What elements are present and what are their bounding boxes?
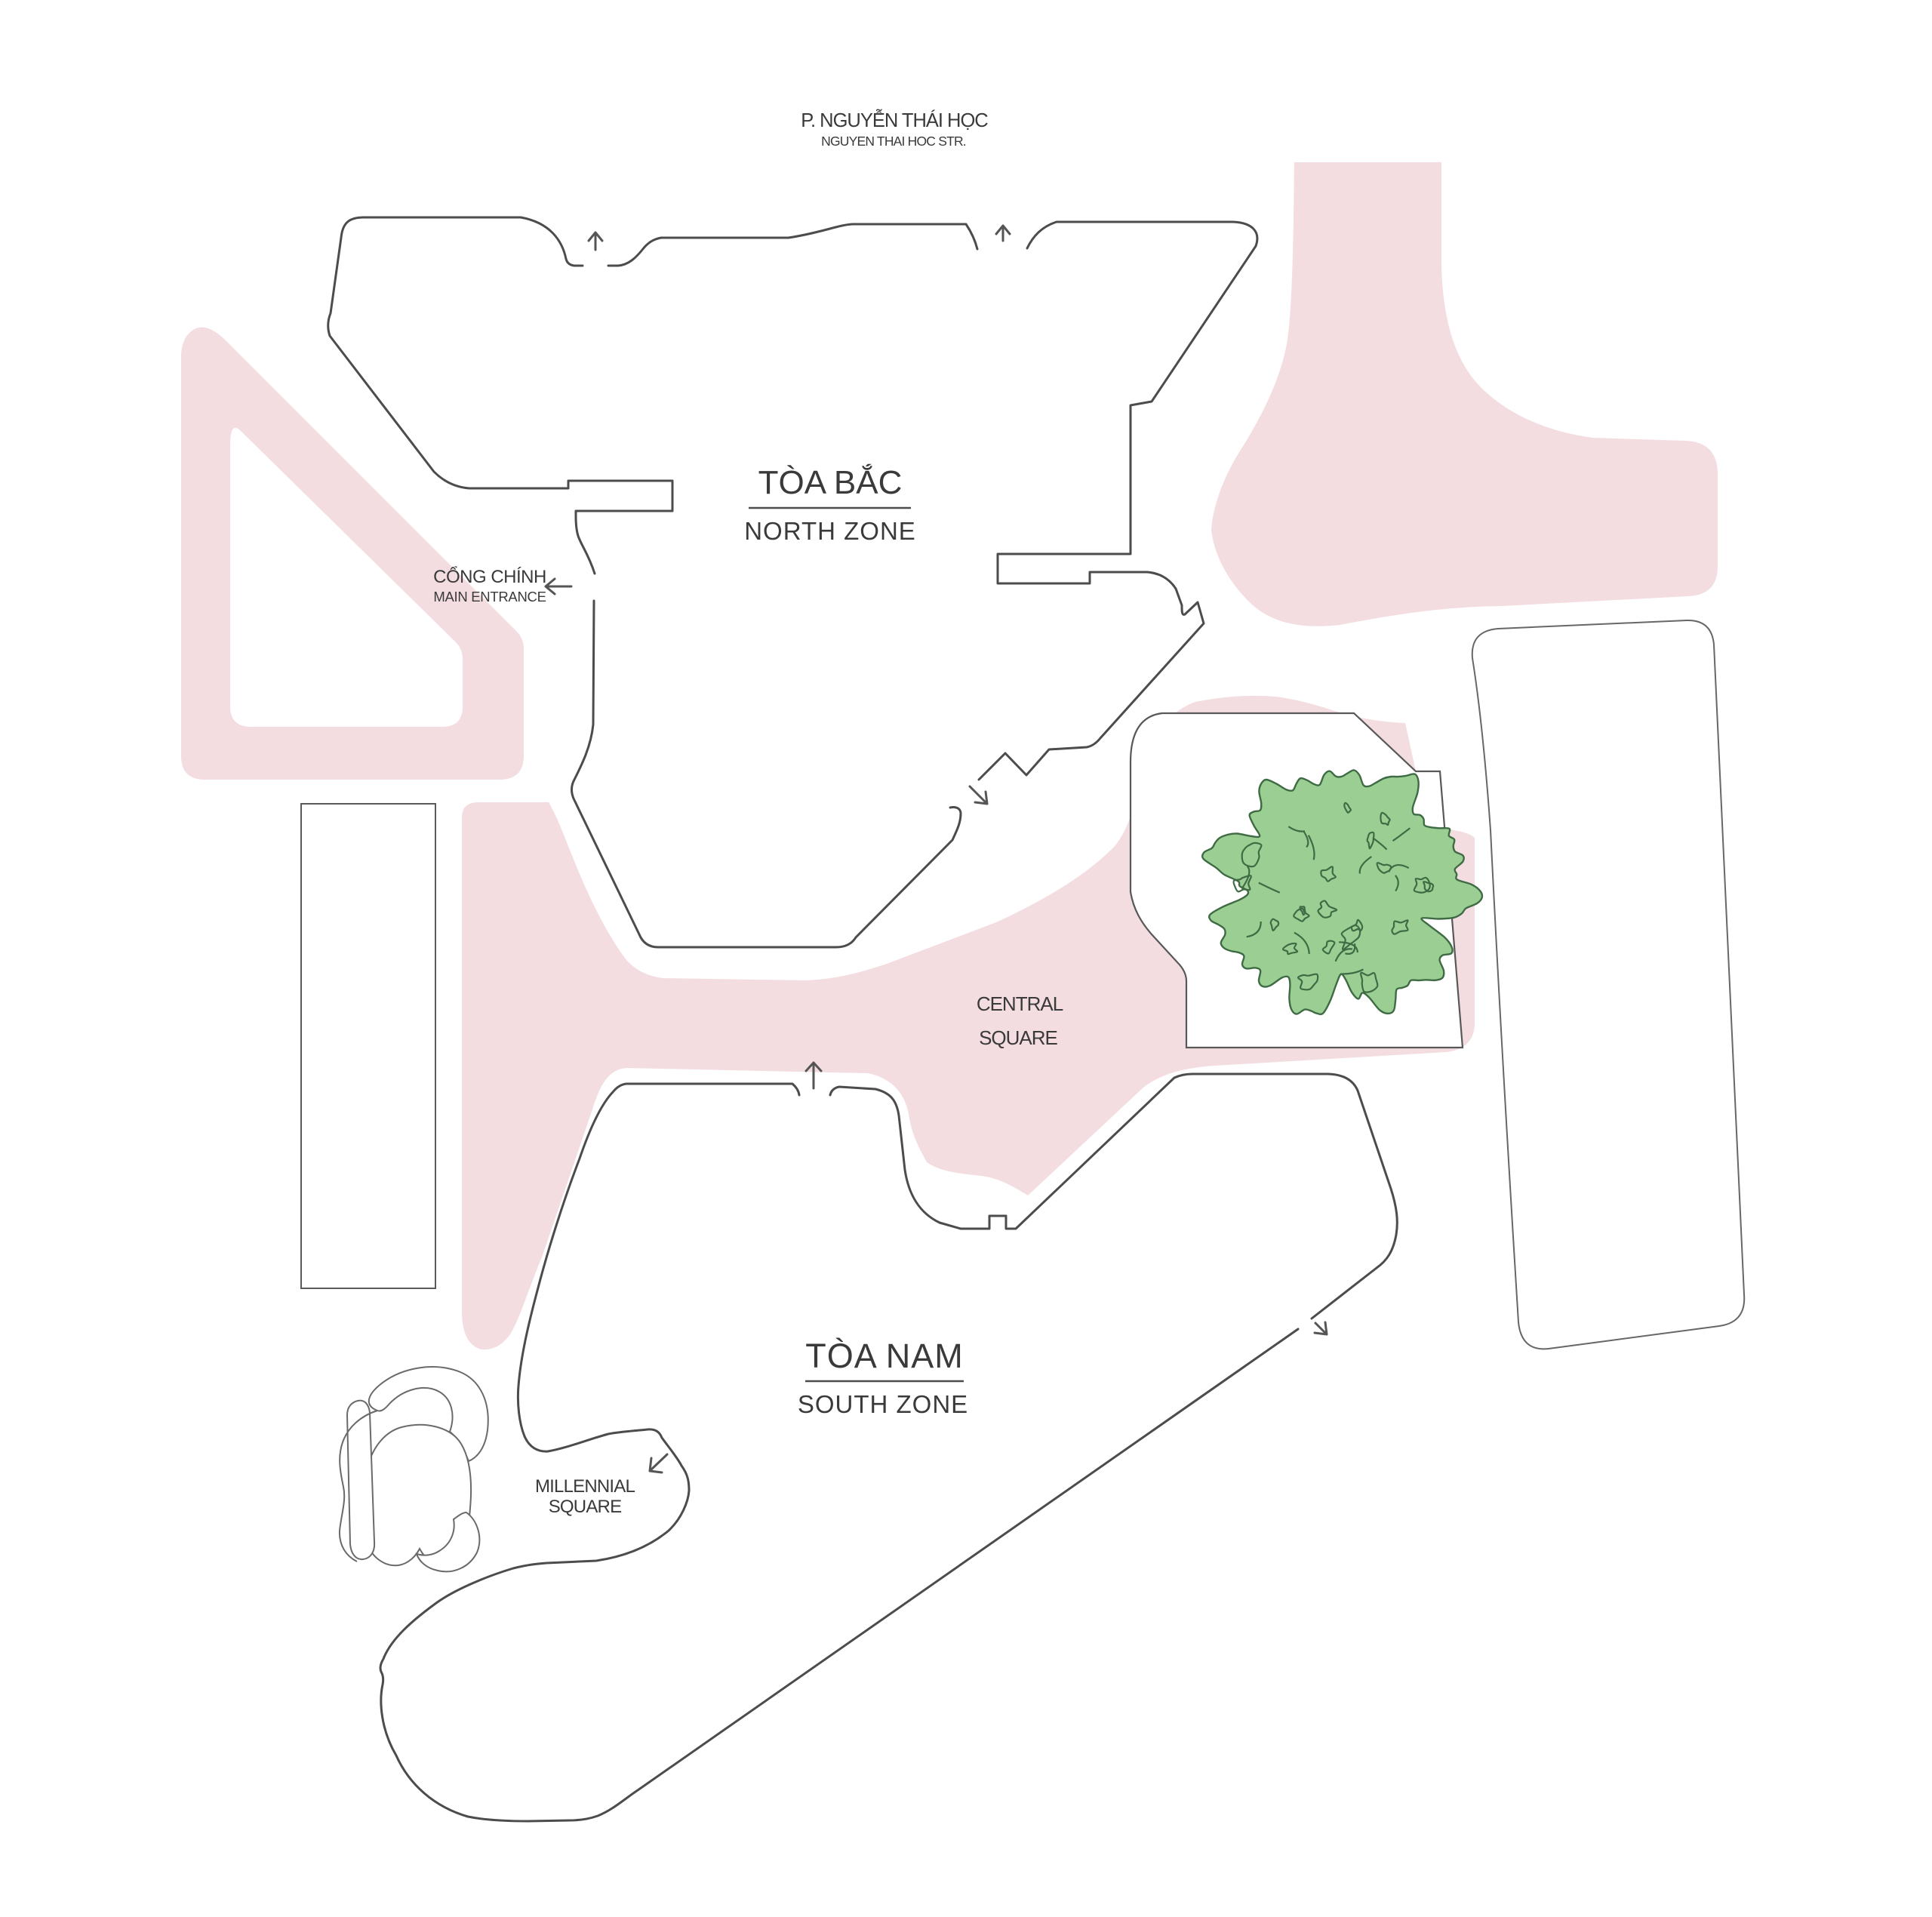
svg-text:CỔNG CHÍNH: CỔNG CHÍNH [433, 566, 546, 587]
svg-text:SQUARE: SQUARE [979, 1026, 1057, 1049]
svg-text:MILLENNIAL: MILLENNIAL [535, 1476, 635, 1497]
svg-text:TÒA BẮC: TÒA BẮC [758, 463, 903, 501]
svg-text:P. NGUYỄN THÁI HỌC: P. NGUYỄN THÁI HỌC [801, 109, 988, 131]
svg-text:SQUARE: SQUARE [549, 1497, 622, 1517]
svg-text:TÒA NAM: TÒA NAM [805, 1337, 964, 1375]
svg-text:NORTH ZONE: NORTH ZONE [744, 517, 916, 545]
svg-text:MAIN ENTRANCE: MAIN ENTRANCE [433, 589, 546, 605]
svg-text:CENTRAL: CENTRAL [977, 992, 1063, 1015]
svg-text:NGUYEN THAI HOC STR.: NGUYEN THAI HOC STR. [821, 134, 966, 149]
svg-text:SOUTH ZONE: SOUTH ZONE [798, 1390, 968, 1418]
